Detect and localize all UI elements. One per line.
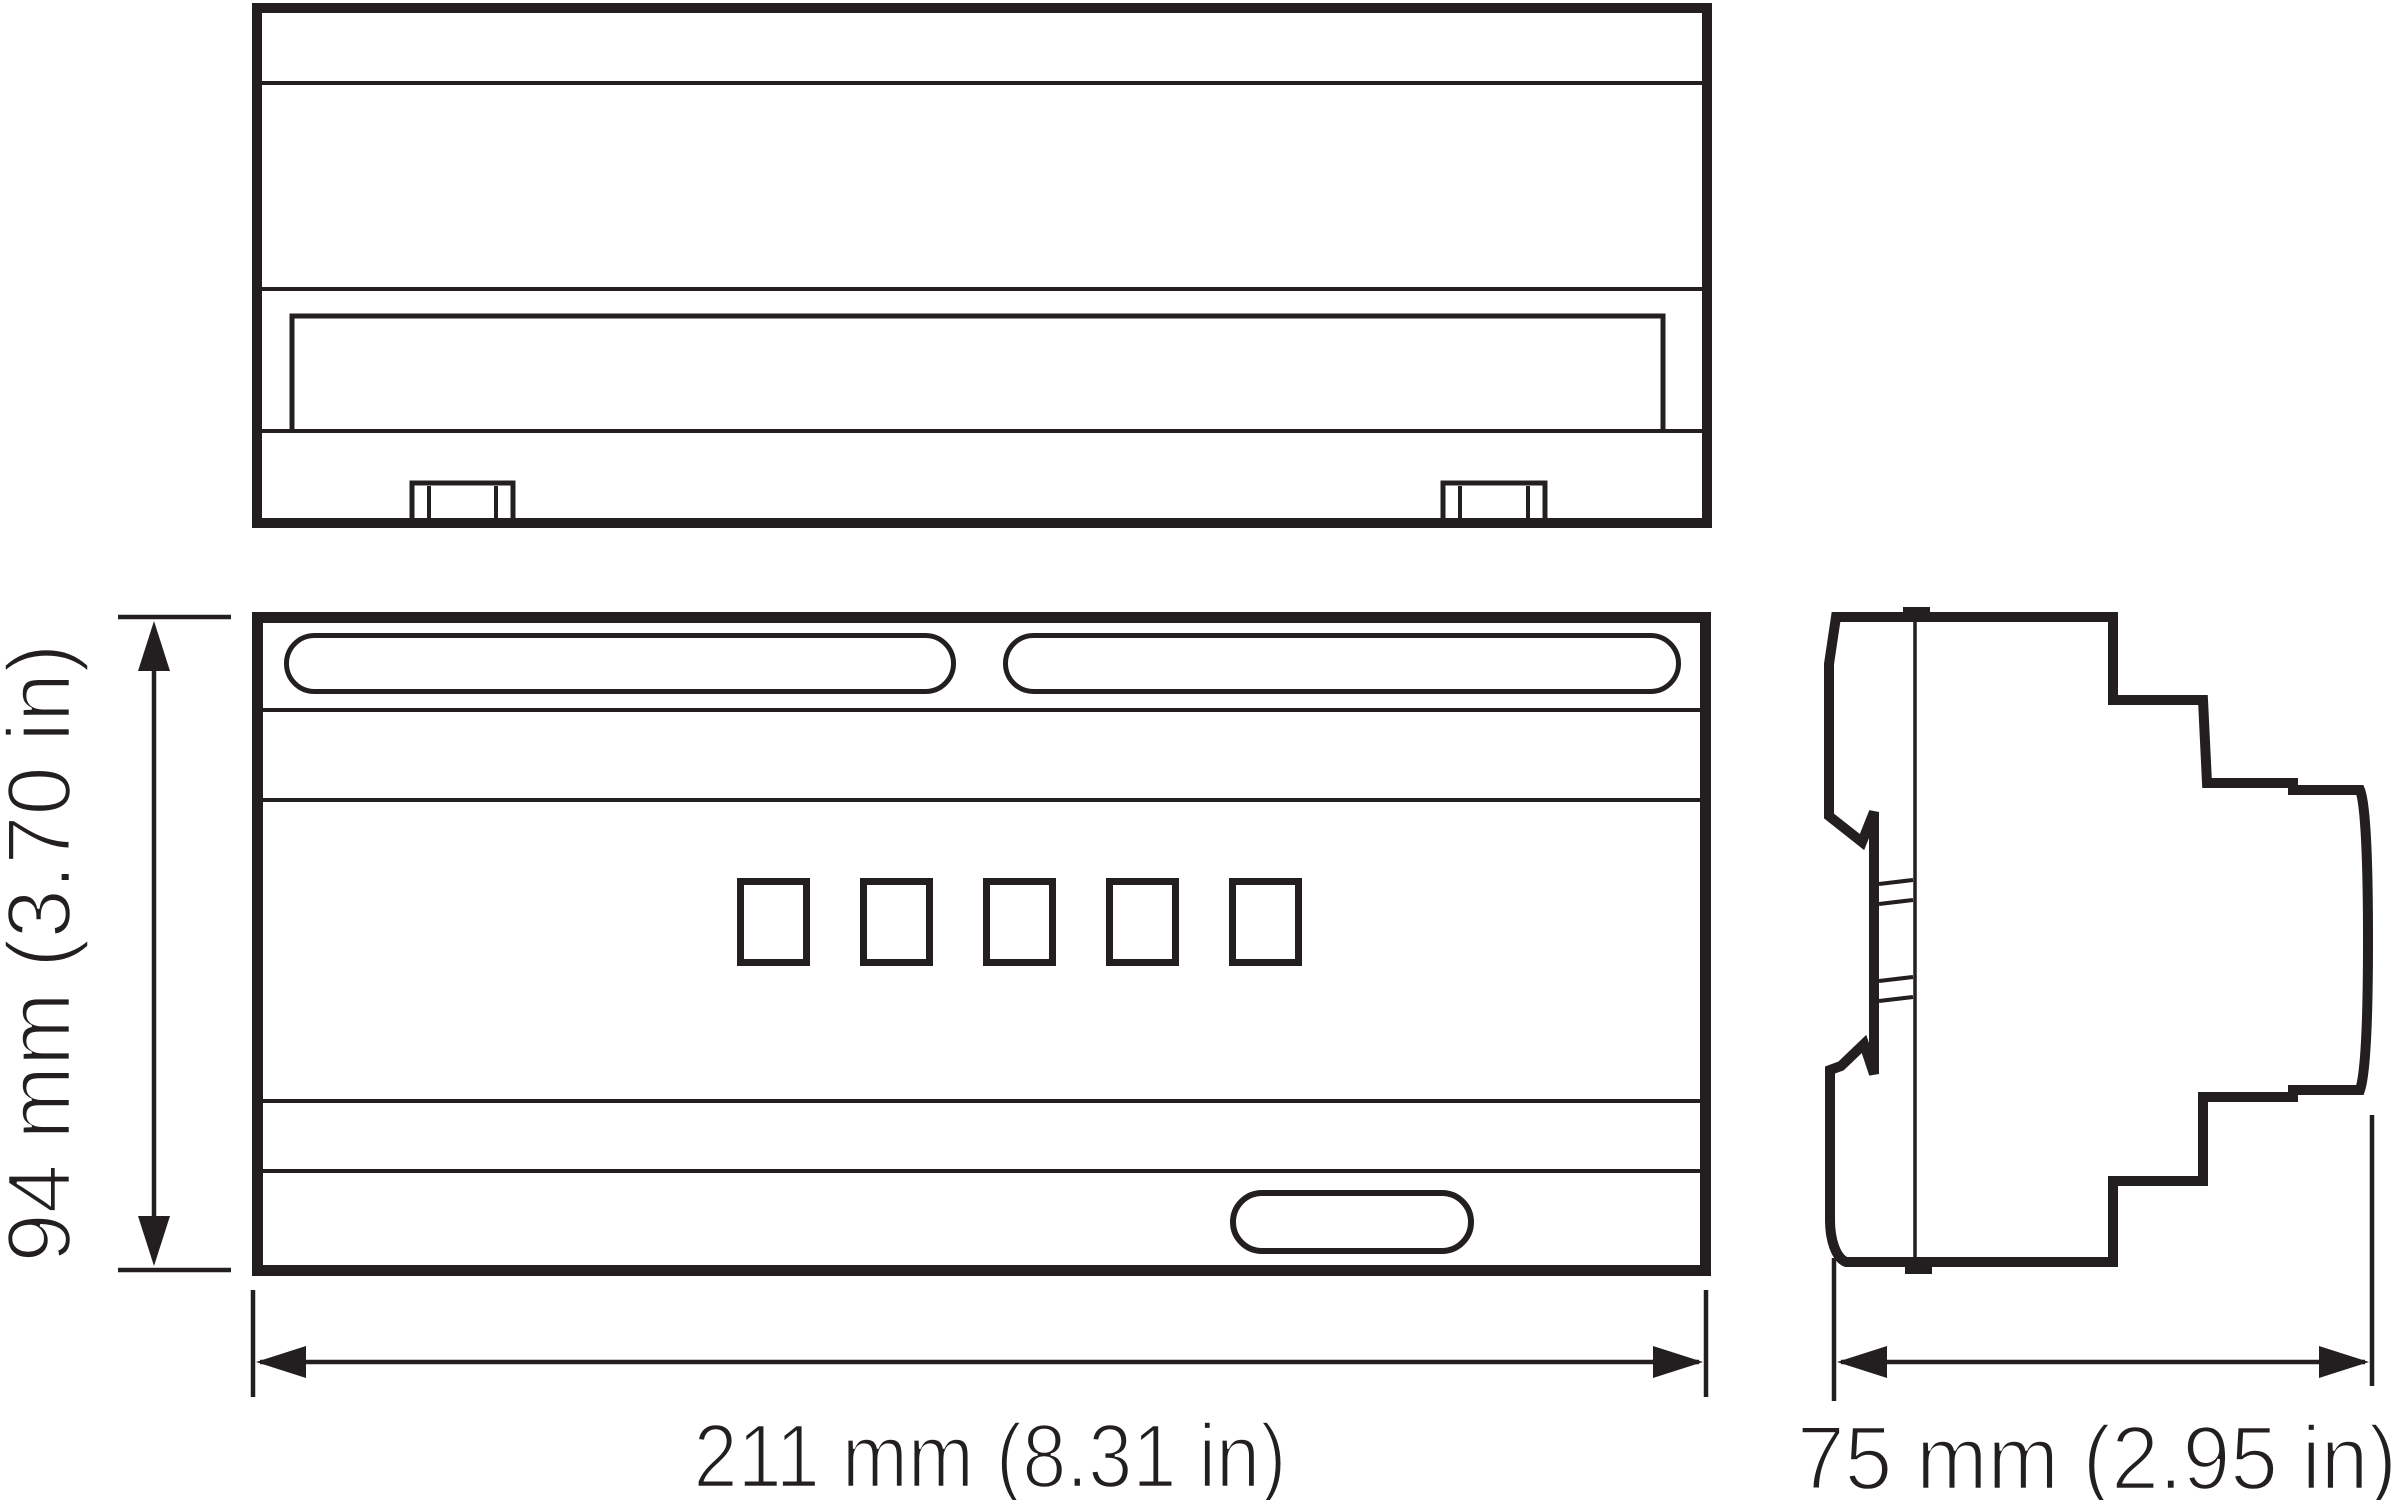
svg-text:75 mm (2.95 in): 75 mm (2.95 in) xyxy=(1797,1409,2397,1500)
svg-text:94 mm (3.70 in): 94 mm (3.70 in) xyxy=(0,644,90,1263)
svg-text:211 mm (8.31 in): 211 mm (8.31 in) xyxy=(694,1407,1287,1500)
